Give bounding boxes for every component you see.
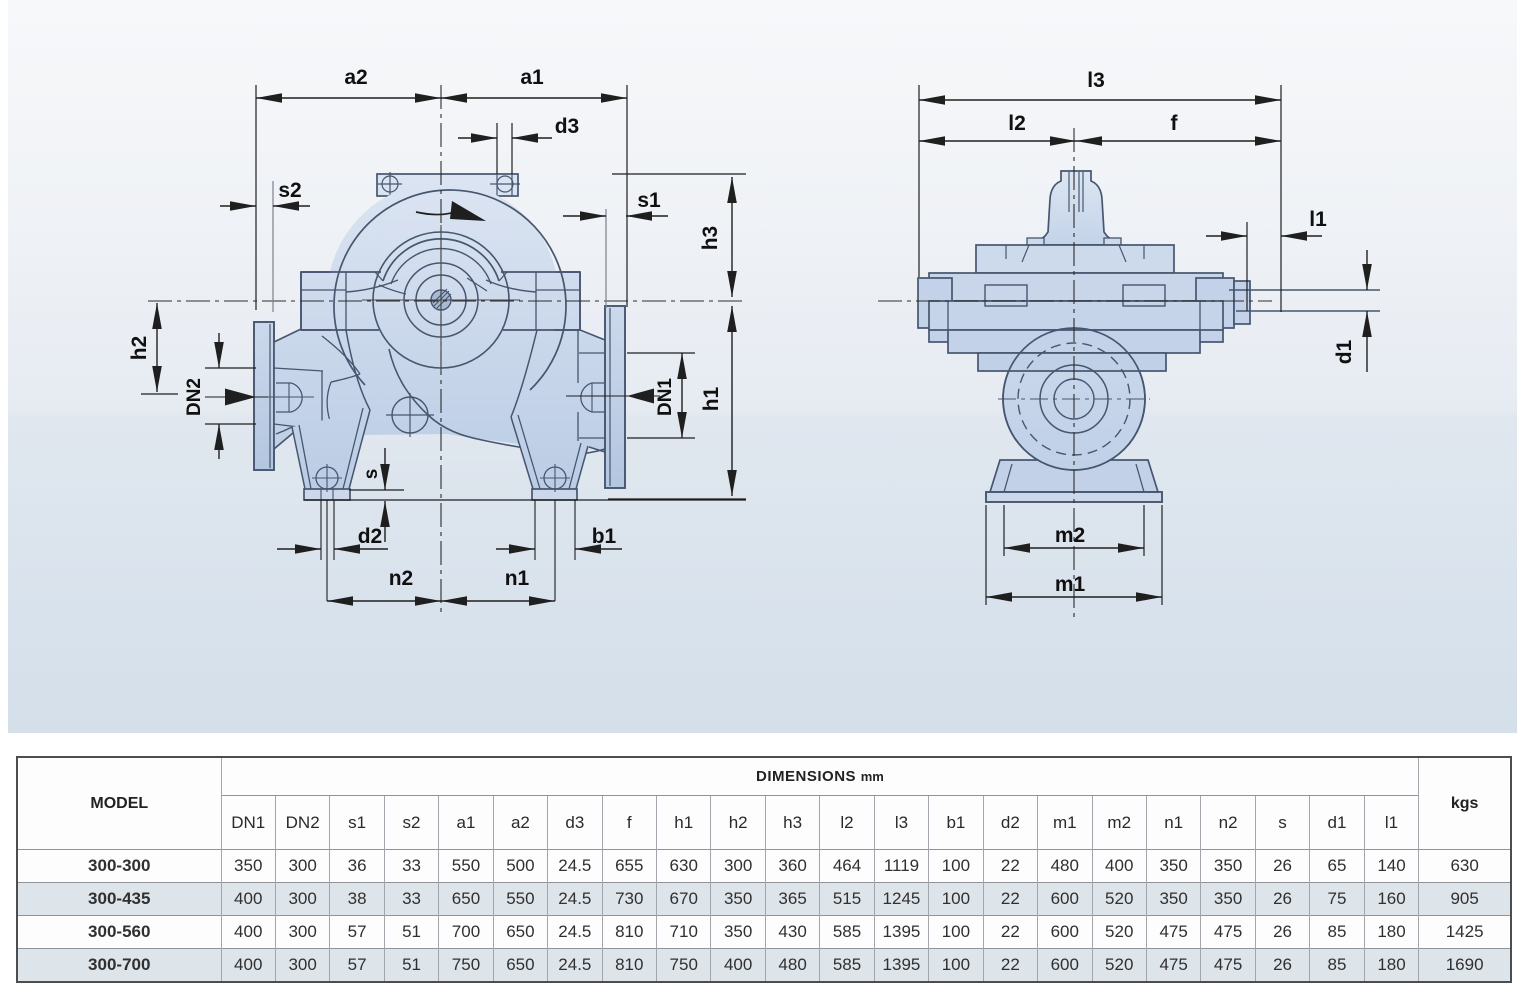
svg-text:m1: m1 bbox=[1055, 573, 1086, 596]
svg-text:b1: b1 bbox=[592, 525, 617, 548]
svg-text:h1: h1 bbox=[700, 386, 723, 411]
svg-text:DN2: DN2 bbox=[184, 378, 205, 416]
svg-text:h2: h2 bbox=[128, 336, 151, 361]
svg-text:a1: a1 bbox=[520, 66, 544, 89]
svg-text:s1: s1 bbox=[637, 189, 661, 212]
svg-text:l1: l1 bbox=[1309, 208, 1327, 231]
svg-text:s: s bbox=[361, 469, 382, 480]
svg-text:d1: d1 bbox=[1333, 339, 1356, 364]
svg-text:m2: m2 bbox=[1055, 524, 1085, 547]
svg-text:a2: a2 bbox=[344, 66, 367, 89]
svg-text:f: f bbox=[1171, 112, 1179, 135]
svg-text:l3: l3 bbox=[1087, 69, 1105, 92]
svg-text:d3: d3 bbox=[555, 115, 580, 138]
svg-text:s2: s2 bbox=[278, 179, 301, 202]
svg-text:n2: n2 bbox=[389, 567, 414, 590]
svg-text:n1: n1 bbox=[505, 567, 530, 590]
svg-text:d2: d2 bbox=[358, 525, 383, 548]
svg-text:h3: h3 bbox=[699, 226, 722, 251]
svg-text:l2: l2 bbox=[1008, 112, 1026, 135]
svg-text:DN1: DN1 bbox=[655, 378, 676, 416]
